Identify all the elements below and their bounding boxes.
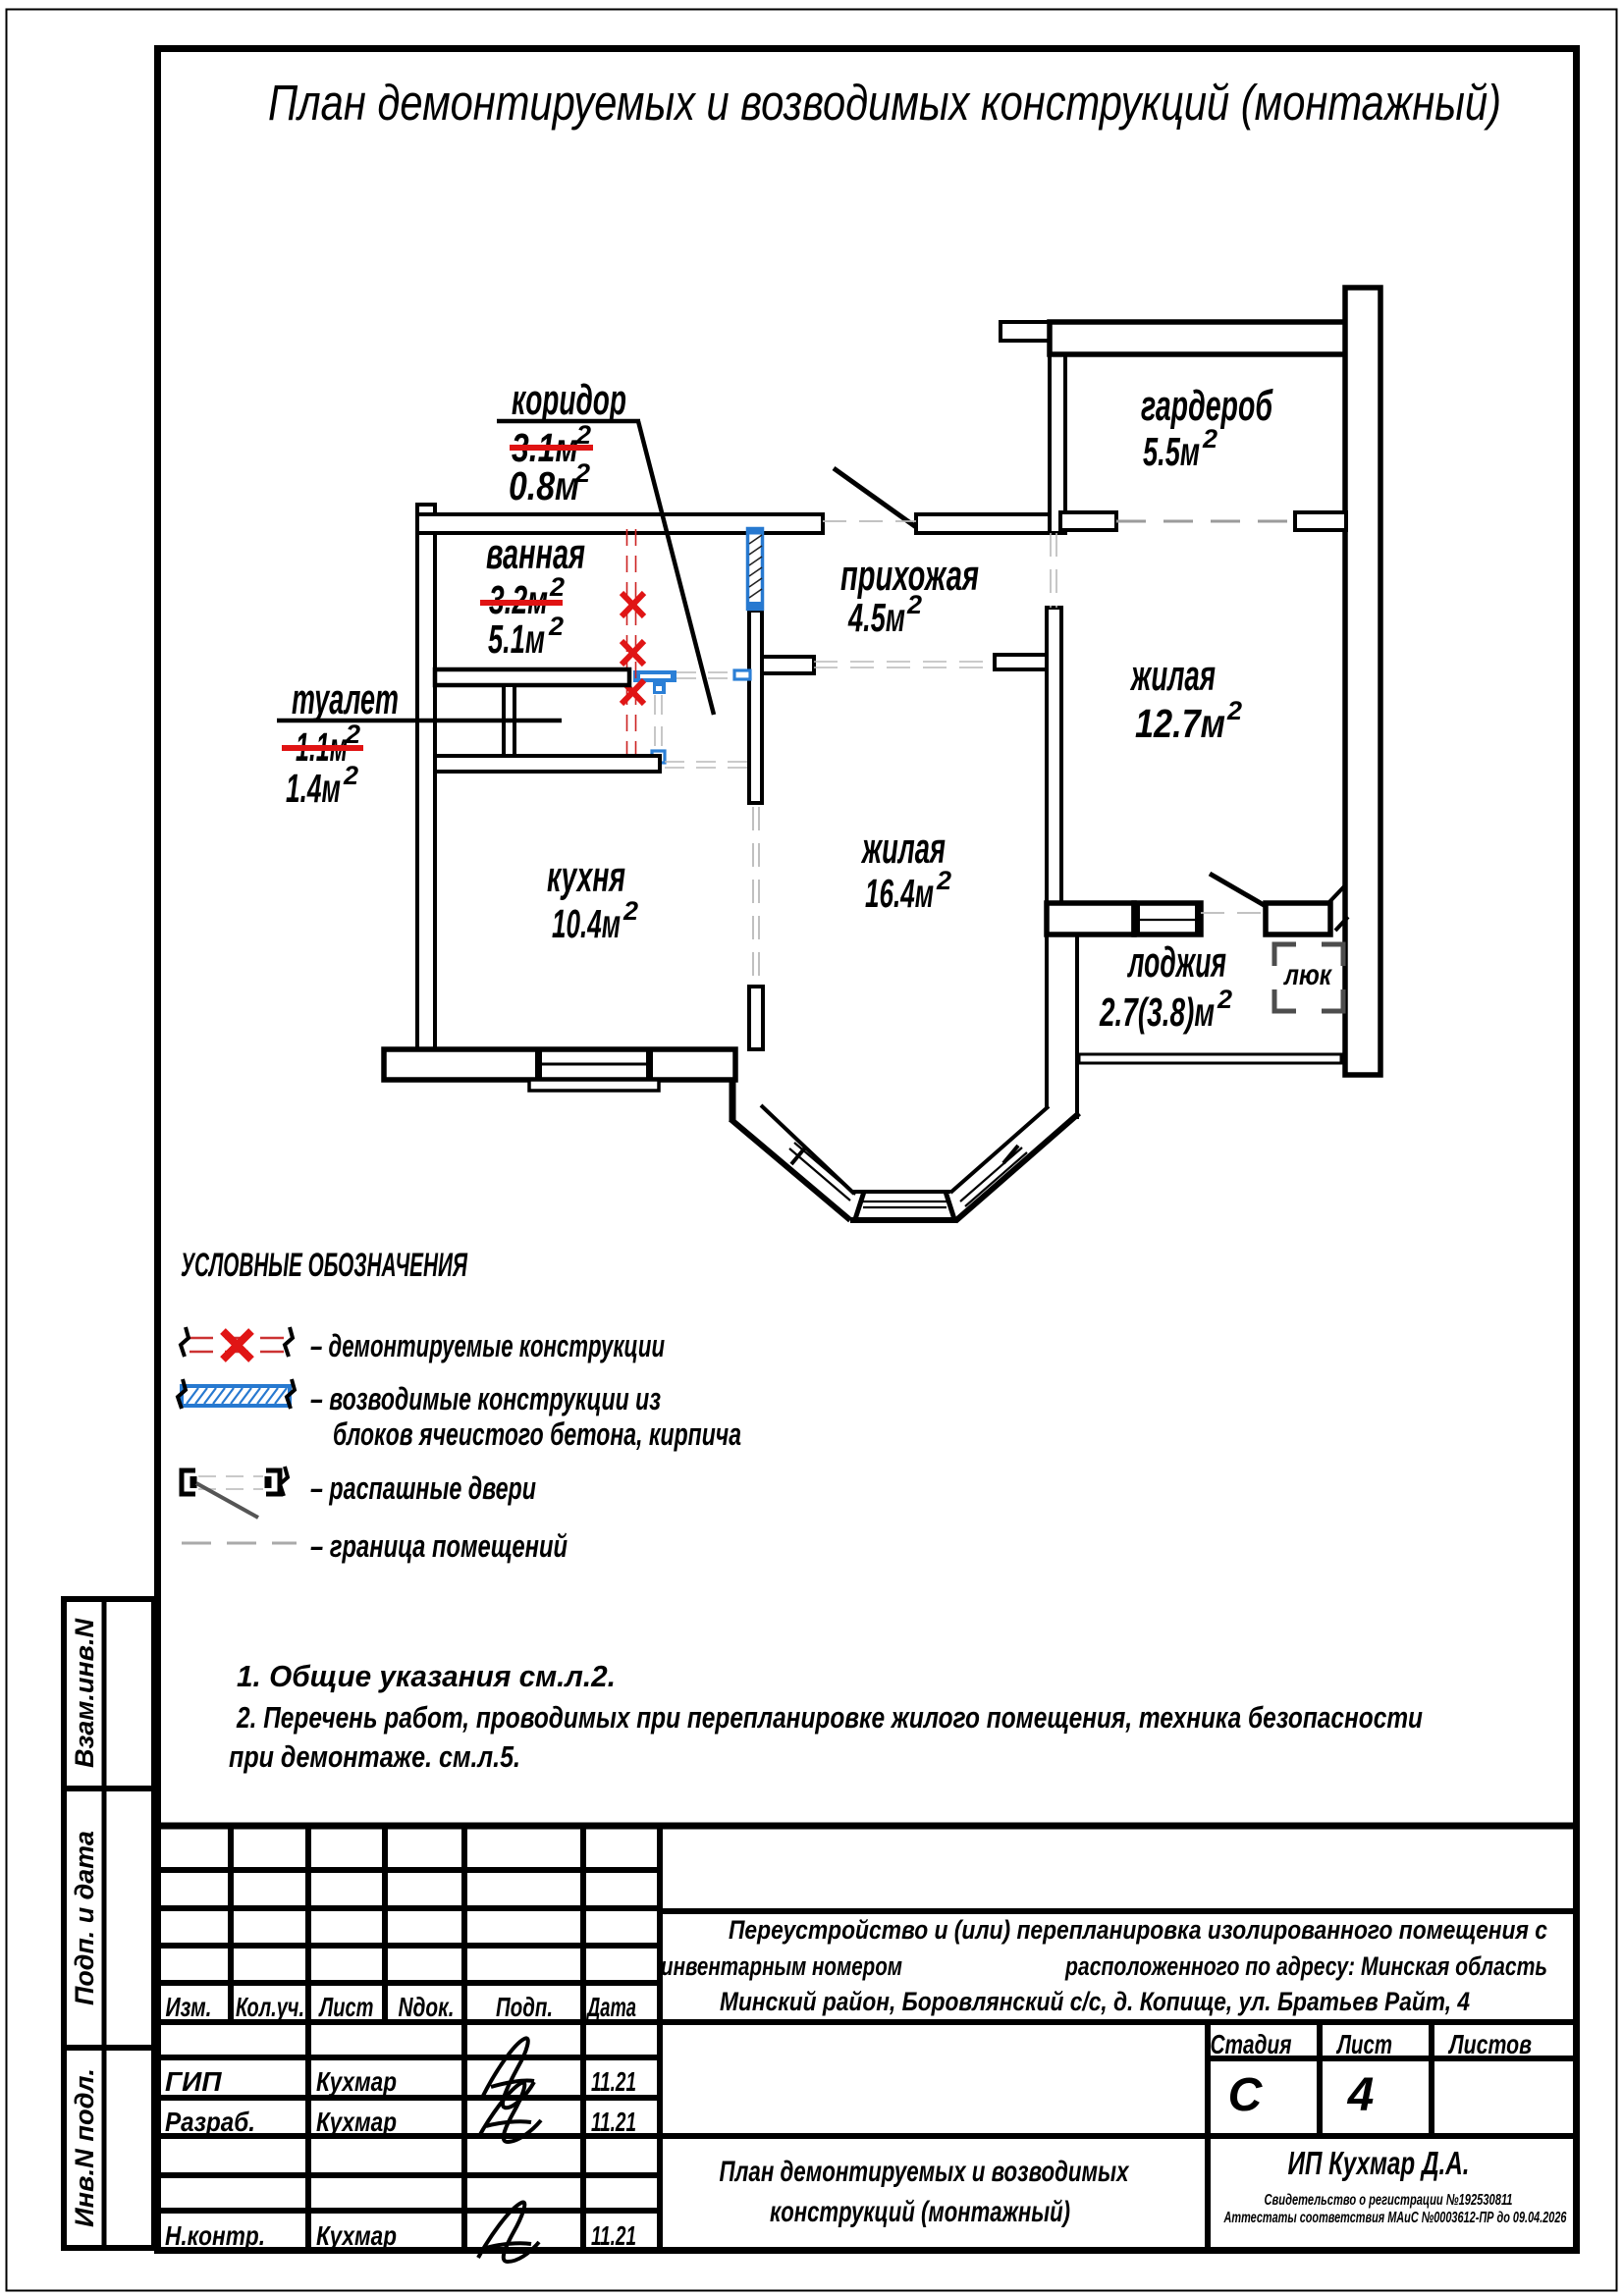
svg-text:Разраб.: Разраб. [165,2107,255,2137]
svg-text:блоков ячеистого бетона, кирпи: блоков ячеистого бетона, кирпича [333,1416,741,1452]
svg-text:при демонтаже. см.л.5.: при демонтаже. см.л.5. [229,1739,520,1774]
svg-text:Свидетельство о регистрации №: Свидетельство о регистрации №192530811 [1265,2192,1513,2209]
svg-text:2. Перечень работ, проводимых: 2. Перечень работ, проводимых при перепл… [236,1700,1423,1735]
svg-text:Инв.N подл.: Инв.N подл. [70,2068,99,2227]
svg-text:Листов: Листов [1447,2029,1532,2059]
svg-text:Минский район, Боровлянский с/: Минский район, Боровлянский с/с, д. Копи… [720,1987,1470,2016]
svg-text:11.21: 11.21 [591,2107,636,2137]
svg-text:Н.контр.: Н.контр. [165,2220,265,2251]
svg-text:4.5м: 4.5м [847,595,905,640]
svg-text:2: 2 [906,590,922,619]
svg-text:2: 2 [345,720,360,749]
svg-text:– возводимые конструкции из: – возводимые конструкции из [310,1381,661,1416]
svg-text:– демонтируемые конструкции: – демонтируемые конструкции [310,1328,665,1363]
svg-text:Дата: Дата [586,1992,636,2022]
svg-text:Кухмар: Кухмар [316,2066,397,2097]
svg-text:2: 2 [549,572,565,602]
svg-text:Стадия: Стадия [1211,2029,1292,2059]
svg-text:0.8м: 0.8м [509,463,579,508]
svg-text:2: 2 [343,761,358,790]
svg-text:4: 4 [1347,2069,1375,2121]
svg-text:С: С [1228,2069,1264,2121]
svg-text:Nдок.: Nдок. [399,1992,455,2022]
svg-text:2: 2 [936,866,951,895]
svg-text:Подп.: Подп. [496,1992,553,2022]
svg-text:ванная: ванная [486,530,585,578]
svg-text:16.4м: 16.4м [865,871,934,916]
svg-text:Подп. и дата: Подп. и дата [70,1831,99,2005]
svg-text:Лист: Лист [318,1992,373,2022]
svg-text:2.7(3.8)м: 2.7(3.8)м [1099,989,1215,1035]
svg-text:– граница помещений: – граница помещений [310,1528,568,1564]
svg-text:Аттестаты соответствия МАиС №0: Аттестаты соответствия МАиС №0003612-ПР … [1223,2210,1567,2226]
svg-text:2: 2 [1226,696,1242,725]
svg-text:жилая: жилая [861,825,946,873]
svg-text:План демонтируемых и возводимы: План демонтируемых и возводимых [720,2156,1130,2188]
svg-text:10.4м: 10.4м [552,901,621,946]
svg-text:11.21: 11.21 [591,2220,636,2251]
svg-text:Взам.инв.N: Взам.инв.N [70,1618,99,1768]
svg-text:2: 2 [548,612,564,641]
svg-text:2: 2 [1217,985,1232,1014]
svg-text:Переустройство и (или) перепла: Переустройство и (или) перепланировка из… [729,1915,1547,1945]
svg-text:люк: люк [1282,959,1332,991]
svg-text:Кухмар: Кухмар [316,2220,397,2251]
svg-text:1. Общие указания см.л.2.: 1. Общие указания см.л.2. [237,1659,616,1693]
svg-text:2: 2 [622,896,638,926]
svg-text:1.4м: 1.4м [286,766,341,811]
svg-text:5.1м: 5.1м [488,616,545,662]
svg-text:гардероб: гардероб [1141,382,1273,430]
svg-text:расположенного по адресу: Минс: расположенного по адресу: Минская област… [1064,1951,1547,1981]
svg-text:12.7м: 12.7м [1135,701,1225,746]
svg-text:инвентарным номером: инвентарным номером [661,1951,902,1981]
svg-text:жилая: жилая [1130,652,1216,700]
svg-text:Кол.уч.: Кол.уч. [236,1992,304,2022]
svg-text:конструкций (монтажный): конструкций (монтажный) [770,2196,1070,2228]
svg-text:туалет: туалет [292,675,399,723]
svg-text:Изм.: Изм. [166,1992,212,2022]
svg-text:– распашные двери: – распашные двери [310,1470,536,1506]
svg-text:лоджия: лоджия [1127,938,1226,987]
svg-text:ИП Кухмар Д.А.: ИП Кухмар Д.А. [1288,2145,1470,2181]
svg-text:2: 2 [1202,424,1217,454]
svg-text:2: 2 [574,458,590,488]
svg-text:План демонтируемых и возводимы: План демонтируемых и возводимых конструк… [268,75,1501,131]
svg-text:5.5м: 5.5м [1143,429,1200,474]
svg-text:Кухмар: Кухмар [316,2107,397,2137]
svg-text:Лист: Лист [1336,2029,1392,2059]
svg-text:кухня: кухня [547,853,625,901]
svg-text:11.21: 11.21 [591,2066,636,2097]
svg-text:коридор: коридор [512,376,626,424]
svg-text:ГИП: ГИП [165,2066,222,2097]
svg-text:УСЛОВНЫЕ ОБОЗНАЧЕНИЯ: УСЛОВНЫЕ ОБОЗНАЧЕНИЯ [181,1247,468,1284]
